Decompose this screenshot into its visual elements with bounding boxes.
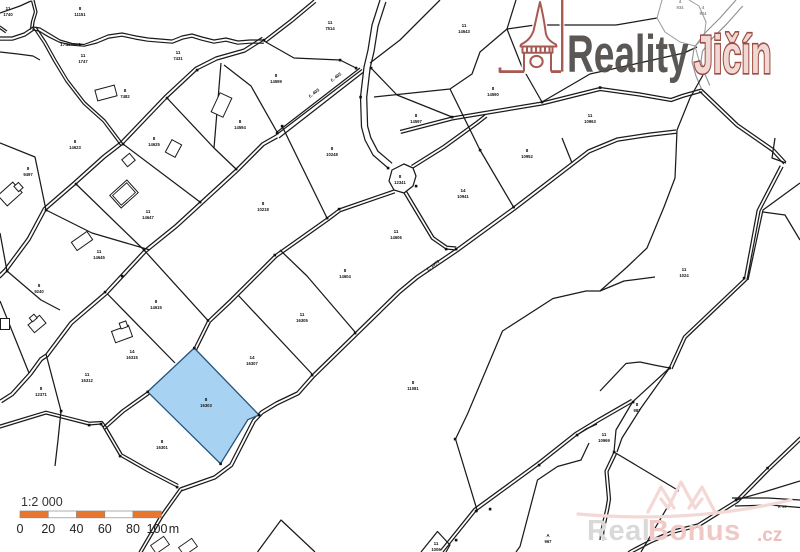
- svg-text:11: 11: [146, 209, 151, 214]
- svg-text:11: 11: [176, 50, 181, 55]
- svg-text:8: 8: [412, 380, 415, 385]
- svg-text:14597: 14597: [410, 119, 422, 124]
- svg-text:8: 8: [399, 174, 402, 179]
- svg-text:8: 8: [331, 146, 334, 151]
- svg-text:7482: 7482: [120, 94, 130, 99]
- svg-text:14643: 14643: [458, 29, 470, 34]
- svg-text:8: 8: [153, 136, 156, 141]
- svg-text:14623: 14623: [69, 145, 81, 150]
- svg-text:8: 8: [38, 283, 41, 288]
- svg-text:14: 14: [460, 188, 466, 193]
- svg-text:10952: 10952: [521, 154, 533, 159]
- svg-text:14604: 14604: [339, 274, 351, 279]
- svg-text:11: 11: [85, 372, 90, 377]
- svg-text:8: 8: [262, 201, 265, 206]
- svg-text:11: 11: [602, 432, 607, 437]
- svg-text:4: 4: [679, 0, 682, 4]
- svg-text:8: 8: [79, 6, 82, 11]
- svg-text:11151: 11151: [74, 12, 86, 17]
- svg-text:60: 60: [98, 522, 112, 536]
- svg-text:14: 14: [249, 355, 255, 360]
- svg-text:m: m: [169, 522, 179, 536]
- svg-text:9497: 9497: [23, 172, 33, 177]
- svg-text:.cz: .cz: [757, 525, 782, 546]
- svg-text:č. 99: č. 99: [778, 505, 786, 509]
- svg-text:11: 11: [6, 6, 11, 11]
- svg-text:1024: 1024: [679, 273, 689, 278]
- svg-text:14594: 14594: [234, 125, 246, 130]
- svg-text:80: 80: [126, 522, 140, 536]
- svg-text:8: 8: [40, 386, 43, 391]
- svg-text:12371: 12371: [35, 392, 47, 397]
- svg-text:8: 8: [27, 166, 30, 171]
- svg-text:7514: 7514: [325, 26, 335, 31]
- svg-text:8: 8: [124, 88, 127, 93]
- svg-text:967: 967: [545, 539, 553, 544]
- svg-text:16303: 16303: [200, 403, 212, 408]
- svg-text:8: 8: [492, 86, 495, 91]
- svg-text:16305: 16305: [296, 318, 308, 323]
- svg-text:934: 934: [677, 5, 685, 10]
- svg-text:1747: 1747: [78, 59, 88, 64]
- svg-text:12341: 12341: [394, 180, 406, 185]
- svg-text:11: 11: [394, 229, 399, 234]
- svg-text:100: 100: [147, 522, 168, 536]
- svg-text:20: 20: [41, 522, 55, 536]
- svg-text:924: 924: [700, 11, 708, 16]
- svg-text:14: 14: [129, 349, 135, 354]
- svg-text:4: 4: [702, 5, 705, 10]
- svg-text:16301: 16301: [156, 445, 168, 450]
- svg-text:Jičín: Jičín: [694, 24, 771, 85]
- svg-text:8: 8: [526, 148, 529, 153]
- svg-text:14615: 14615: [150, 305, 162, 310]
- svg-text:8: 8: [155, 299, 158, 304]
- svg-text:1740: 1740: [3, 12, 13, 17]
- svg-text:11: 11: [588, 113, 593, 118]
- svg-text:8: 8: [636, 402, 639, 407]
- svg-text:1006: 1006: [431, 547, 441, 552]
- svg-text:11: 11: [300, 312, 305, 317]
- svg-text:Reality: Reality: [567, 24, 689, 83]
- svg-text:14599: 14599: [270, 79, 282, 84]
- svg-text:1:2 000: 1:2 000: [21, 495, 63, 509]
- svg-text:14606: 14606: [390, 235, 402, 240]
- svg-text:9240: 9240: [34, 289, 44, 294]
- svg-text:14590: 14590: [487, 92, 499, 97]
- svg-text:8: 8: [74, 139, 77, 144]
- svg-text:10218: 10218: [257, 207, 269, 212]
- svg-text:1743: 1743: [60, 42, 71, 48]
- svg-text:Real: Real: [587, 515, 650, 547]
- svg-text:8: 8: [275, 73, 278, 78]
- svg-text:14647: 14647: [142, 215, 154, 220]
- svg-text:8: 8: [415, 113, 418, 118]
- svg-text:11: 11: [81, 53, 86, 58]
- svg-text:14645: 14645: [93, 255, 105, 260]
- svg-text:11: 11: [462, 23, 467, 28]
- svg-text:0: 0: [17, 522, 24, 536]
- svg-text:11: 11: [434, 541, 439, 546]
- svg-text:8: 8: [161, 439, 164, 444]
- svg-text:11: 11: [328, 20, 333, 25]
- svg-text:987: 987: [634, 408, 642, 413]
- svg-text:14625: 14625: [148, 142, 160, 147]
- svg-text:11081: 11081: [407, 386, 419, 391]
- svg-text:40: 40: [70, 522, 84, 536]
- svg-text:11: 11: [682, 267, 687, 272]
- svg-text:16315: 16315: [126, 355, 138, 360]
- svg-text:7431: 7431: [173, 56, 183, 61]
- svg-text:16312: 16312: [81, 378, 93, 383]
- svg-text:10248: 10248: [326, 152, 338, 157]
- svg-text:16307: 16307: [246, 361, 258, 366]
- svg-text:10969: 10969: [598, 438, 610, 443]
- svg-text:11: 11: [97, 249, 102, 254]
- svg-text:Bonus: Bonus: [648, 515, 741, 547]
- svg-text:8: 8: [205, 397, 208, 402]
- svg-text:8: 8: [344, 268, 347, 273]
- svg-text:10963: 10963: [584, 119, 596, 124]
- svg-text:8: 8: [239, 119, 242, 124]
- svg-text:10941: 10941: [457, 194, 469, 199]
